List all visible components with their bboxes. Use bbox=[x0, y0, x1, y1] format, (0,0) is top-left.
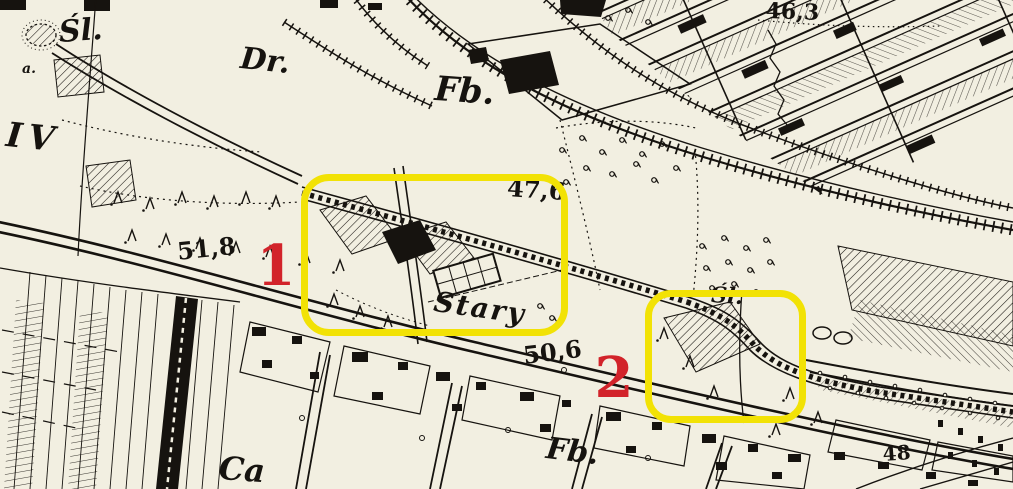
map-label-settlement-sl-top: Śl. bbox=[58, 15, 104, 48]
marker-2[interactable]: 2 bbox=[588, 350, 640, 406]
allotments bbox=[0, 268, 240, 489]
map-label-district-iv: IV bbox=[4, 118, 62, 157]
map-label-elevation-50-6: 50,6 bbox=[522, 337, 583, 368]
map-label-factory-fb-bottom: Fb. bbox=[544, 434, 600, 470]
pond bbox=[22, 20, 60, 50]
map-label-elevation-48: 48 bbox=[882, 442, 911, 464]
map-label-factory-fb-top: Fb. bbox=[434, 72, 496, 110]
marker-1[interactable]: 1 bbox=[252, 238, 300, 294]
map-label-letter-a-west: a. bbox=[22, 62, 36, 76]
map-image: Śl. a. Dr. IV Fb. 46,3 47,6 51,8 Stary Ś… bbox=[0, 0, 1013, 489]
map-label-elevation-46-3: 46,3 bbox=[765, 0, 819, 24]
map-label-settlement-dr: Dr. bbox=[239, 44, 291, 79]
highlight-box-2[interactable] bbox=[645, 290, 806, 423]
map-label-elevation-51-8: 51,8 bbox=[176, 234, 237, 264]
map-label-place-ca: Ca bbox=[218, 452, 266, 487]
highlight-box-1[interactable] bbox=[301, 174, 568, 336]
